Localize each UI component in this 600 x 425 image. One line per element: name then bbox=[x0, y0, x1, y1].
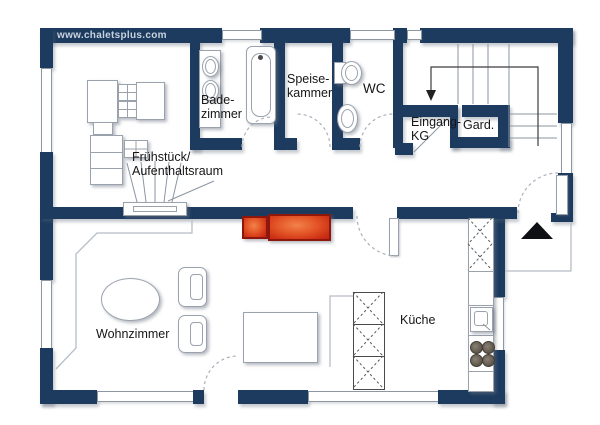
tall-cabinet bbox=[353, 292, 385, 326]
door-arc-terrace bbox=[204, 356, 238, 390]
entrance-arrow-icon bbox=[521, 222, 553, 239]
interior-wall-eingang-bottom bbox=[395, 143, 413, 155]
heater-block bbox=[268, 214, 331, 241]
window bbox=[222, 30, 262, 40]
stove-burner bbox=[482, 341, 495, 354]
washbasin bbox=[341, 61, 362, 85]
window bbox=[308, 391, 440, 402]
window bbox=[350, 30, 395, 40]
bathtub bbox=[246, 46, 276, 124]
interior-wall-gard-top bbox=[462, 105, 498, 117]
kitchen-island bbox=[243, 312, 318, 363]
armchair bbox=[178, 267, 207, 307]
tiled-stove-hearth bbox=[123, 202, 187, 216]
bathtub-faucet bbox=[258, 55, 263, 60]
washbasin bbox=[202, 56, 219, 77]
armchair bbox=[178, 315, 207, 353]
interior-wall-wc-bottom bbox=[343, 138, 360, 150]
toilet bbox=[337, 104, 358, 133]
oval-table bbox=[101, 278, 160, 321]
kitchen-sink bbox=[470, 307, 493, 332]
window bbox=[41, 68, 52, 154]
room-label-eingang-kg: Eingang- KG bbox=[411, 115, 461, 143]
door-arc-speisekammer bbox=[297, 114, 330, 147]
window bbox=[41, 280, 52, 350]
site-url-label: www.chaletsplus.com bbox=[57, 30, 167, 41]
dining-table bbox=[136, 82, 165, 120]
interior-wall-speise-bottom bbox=[285, 138, 297, 150]
room-label-fruehstueck: Frühstück/ Aufenthaltsraum bbox=[132, 150, 223, 178]
window bbox=[493, 297, 504, 352]
dining-table bbox=[90, 135, 123, 185]
heater-block bbox=[242, 216, 268, 239]
dining-table bbox=[87, 80, 118, 123]
stair-arrow-head bbox=[426, 90, 436, 101]
interior-wall-wc-east bbox=[393, 40, 403, 148]
bench bbox=[93, 122, 113, 135]
door-leaf bbox=[389, 218, 399, 256]
window bbox=[407, 30, 422, 40]
room-label-kueche: Küche bbox=[400, 313, 435, 327]
room-label-wohnzimmer: Wohnzimmer bbox=[96, 327, 169, 341]
window bbox=[97, 391, 195, 402]
counter-edge bbox=[330, 296, 353, 367]
interior-wall-main bbox=[397, 207, 517, 219]
tall-cabinet bbox=[353, 356, 385, 390]
room-label-garderobe: Gard. bbox=[463, 118, 494, 132]
door-arc-wc bbox=[360, 114, 393, 147]
dining-chair bbox=[118, 101, 137, 118]
outer-wall-left bbox=[40, 28, 53, 68]
dining-chair bbox=[118, 84, 137, 101]
outer-wall-bottom bbox=[238, 390, 308, 404]
outer-wall-bottom bbox=[40, 390, 97, 404]
stair-landing-steps bbox=[510, 114, 557, 138]
door-arc-entrance bbox=[518, 173, 558, 213]
door-leaf bbox=[556, 175, 568, 215]
outer-wall-right bbox=[558, 28, 573, 123]
room-label-badezimmer: Bade- zimmer bbox=[201, 93, 242, 121]
outer-wall-bottom bbox=[193, 390, 204, 404]
room-label-wc: WC bbox=[363, 82, 386, 96]
tall-cabinet bbox=[353, 324, 385, 358]
interior-wall-bad-bottom bbox=[190, 138, 242, 150]
window bbox=[561, 123, 572, 175]
interior-wall-speise-east bbox=[332, 38, 343, 150]
room-label-speisekammer: Speise- kammer bbox=[287, 72, 332, 100]
outer-wall-top bbox=[420, 28, 573, 43]
floor-plan-canvas: www.chaletsplus.com Bade- zimmer Speise-… bbox=[0, 0, 600, 425]
stove-burner bbox=[482, 354, 495, 367]
